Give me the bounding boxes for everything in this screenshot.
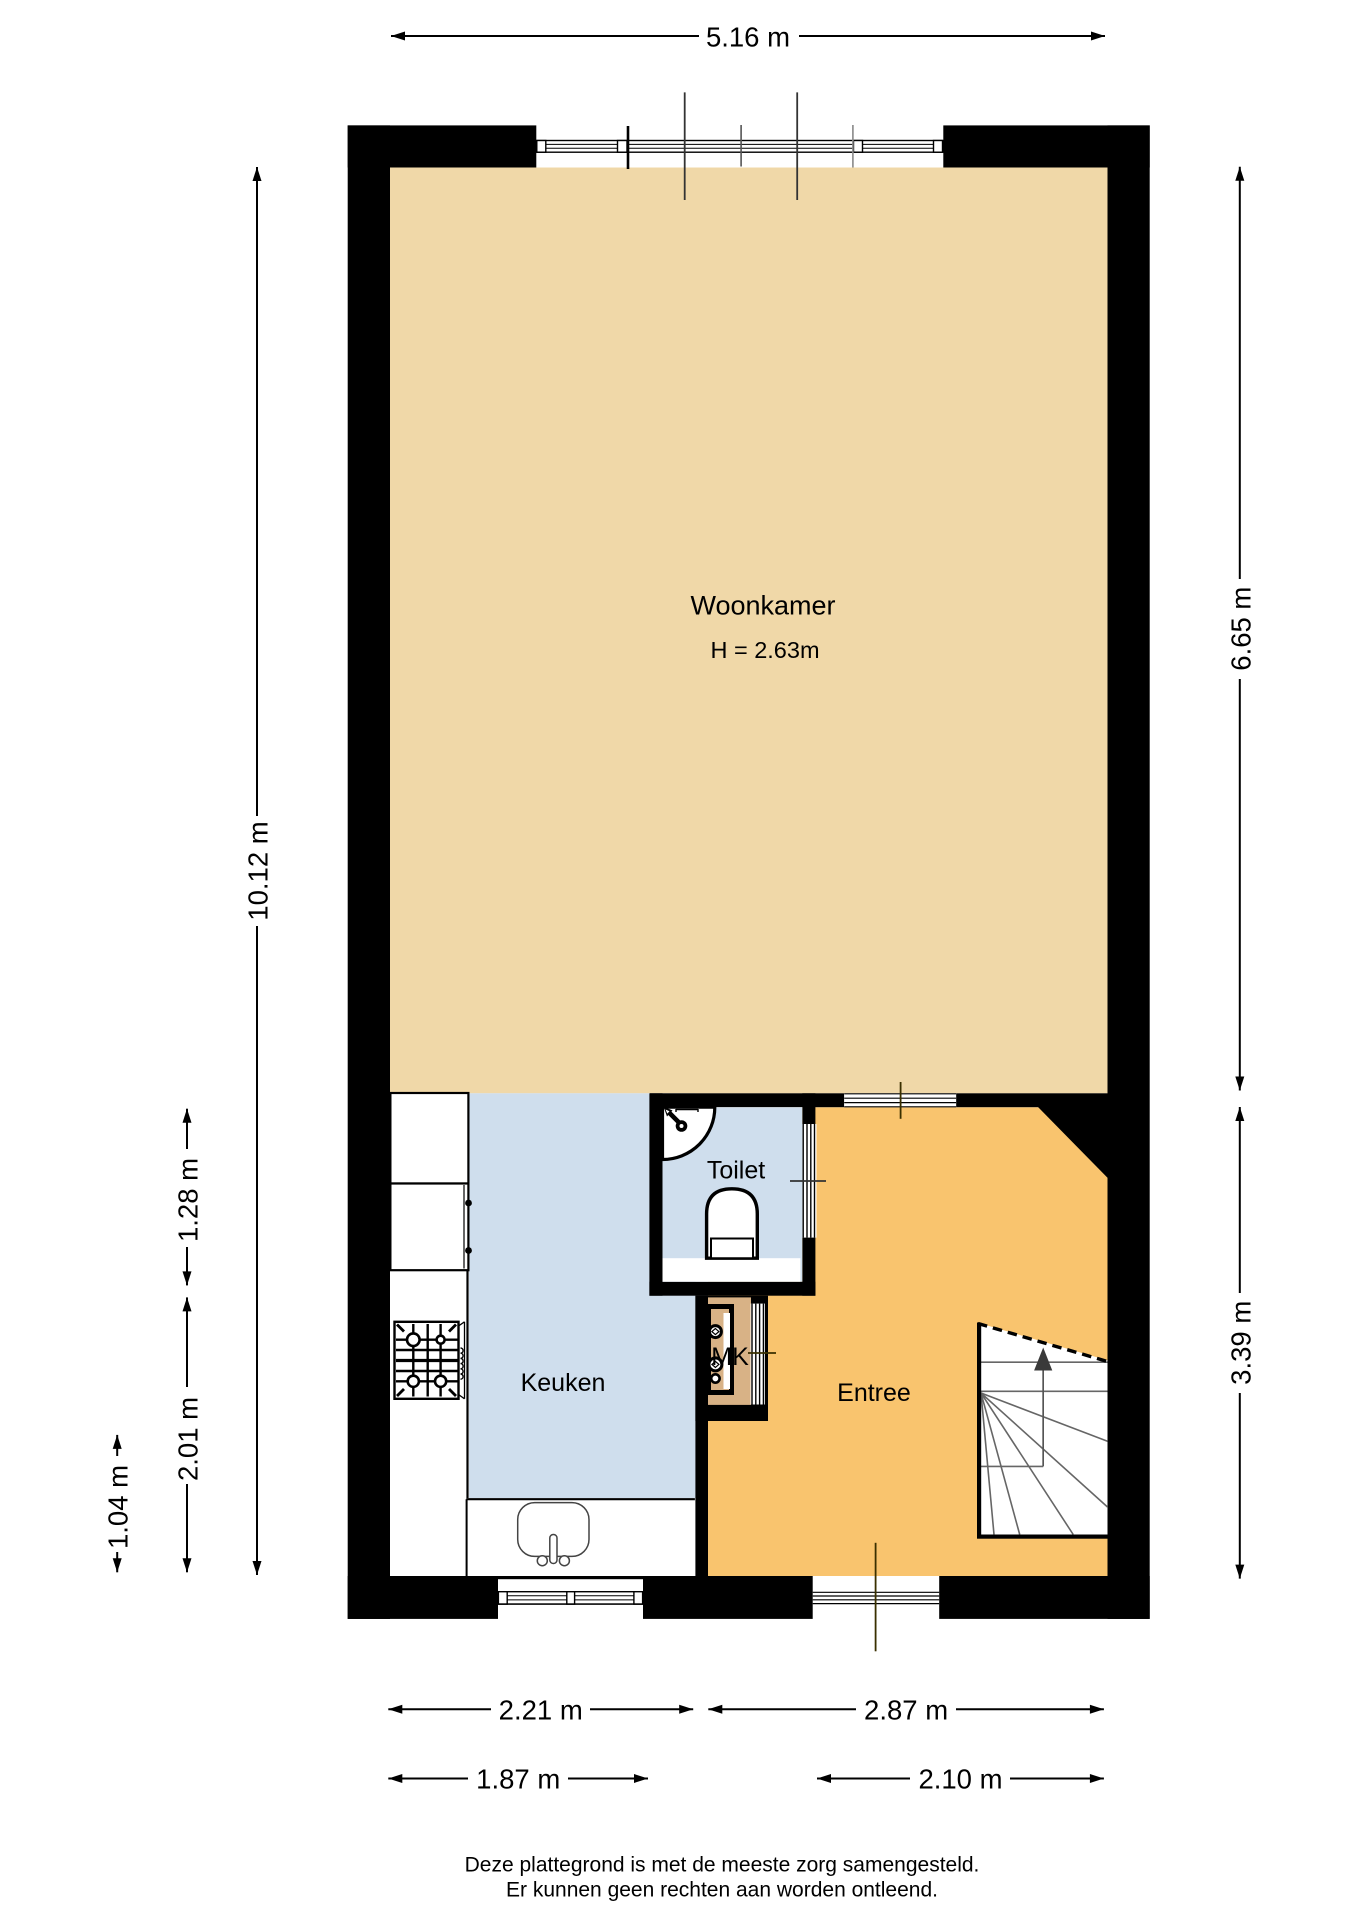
svg-text:Er kunnen geen rechten aan wor: Er kunnen geen rechten aan worden ontlee… [506,1878,938,1901]
svg-text:Deze plattegrond is met de mee: Deze plattegrond is met de meeste zorg s… [465,1854,980,1877]
svg-text:1.87 m: 1.87 m [476,1764,560,1795]
svg-text:10.12 m: 10.12 m [243,821,274,920]
svg-text:1.28 m: 1.28 m [173,1158,204,1242]
svg-text:2.01 m: 2.01 m [173,1397,204,1481]
svg-text:2.87 m: 2.87 m [864,1695,948,1726]
svg-text:5.16 m: 5.16 m [706,21,790,52]
svg-text:Keuken: Keuken [521,1369,606,1397]
svg-text:Toilet: Toilet [707,1156,765,1184]
svg-text:2.10 m: 2.10 m [918,1764,1002,1795]
svg-text:Entree: Entree [837,1379,911,1407]
svg-text:Woonkamer: Woonkamer [690,591,835,621]
svg-text:H = 2.63m: H = 2.63m [710,637,819,663]
svg-text:1.04 m: 1.04 m [103,1465,134,1549]
svg-text:6.65 m: 6.65 m [1225,587,1256,671]
svg-text:3.39 m: 3.39 m [1225,1301,1256,1385]
svg-text:2.21 m: 2.21 m [499,1695,583,1726]
svg-text:MK: MK [711,1343,749,1371]
